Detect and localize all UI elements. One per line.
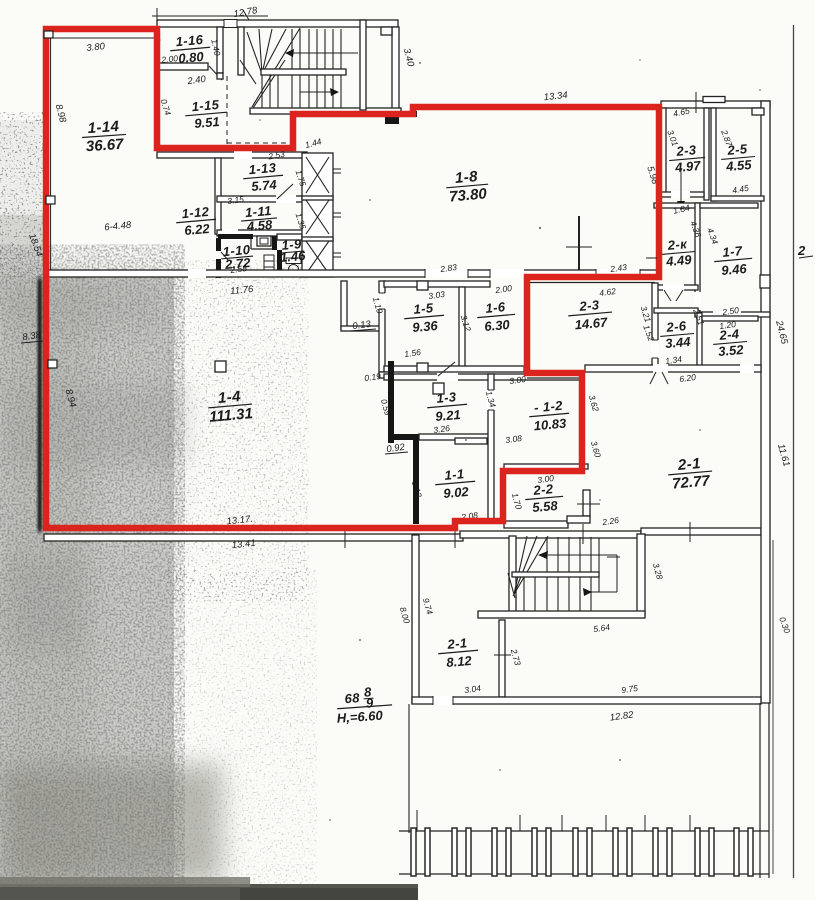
svg-text:4.58: 4.58 [245, 217, 273, 234]
svg-text:2: 2 [797, 243, 806, 258]
svg-text:5.58: 5.58 [532, 498, 559, 515]
svg-text:9.02: 9.02 [443, 484, 470, 501]
svg-text:2-к: 2-к [666, 236, 689, 253]
svg-text:1-6: 1-6 [485, 299, 507, 316]
svg-text:9.46: 9.46 [721, 261, 748, 278]
svg-text:4.55: 4.55 [725, 157, 753, 174]
svg-text:6.30: 6.30 [484, 317, 511, 334]
svg-text:9.51: 9.51 [194, 114, 221, 131]
svg-text:1-5: 1-5 [413, 300, 435, 317]
svg-text:14.67: 14.67 [574, 315, 608, 333]
svg-text:9.36: 9.36 [412, 318, 439, 335]
svg-text:2.00: 2.00 [160, 53, 179, 65]
svg-text:0.80: 0.80 [178, 49, 205, 66]
svg-text:6.22: 6.22 [184, 221, 211, 238]
svg-text:1-12: 1-12 [181, 204, 210, 221]
svg-text:1-7: 1-7 [722, 243, 744, 260]
svg-text:2-3: 2-3 [578, 297, 601, 314]
svg-text:1-1: 1-1 [444, 466, 465, 483]
svg-text:4.97: 4.97 [674, 158, 702, 175]
svg-text:1-8: 1-8 [454, 168, 479, 187]
svg-text:8.12: 8.12 [446, 653, 473, 670]
svg-text:3.52: 3.52 [718, 342, 745, 359]
svg-text:1-13: 1-13 [248, 160, 277, 177]
svg-text:73.80: 73.80 [449, 185, 489, 205]
svg-text:1-16: 1-16 [175, 32, 204, 49]
svg-text:68: 68 [344, 690, 361, 706]
svg-text:2-1: 2-1 [446, 635, 468, 652]
svg-text:2-6: 2-6 [665, 318, 688, 335]
svg-text:1.46: 1.46 [279, 248, 306, 265]
svg-text:- 1-2: - 1-2 [533, 398, 563, 415]
svg-text:72.77: 72.77 [672, 472, 712, 492]
svg-text:2-1: 2-1 [676, 455, 701, 474]
svg-text:3.80: 3.80 [86, 41, 106, 54]
svg-text:9.21: 9.21 [435, 407, 462, 424]
svg-text:1-4: 1-4 [217, 388, 242, 407]
svg-text:1-14: 1-14 [87, 118, 120, 137]
svg-text:5.74: 5.74 [251, 177, 278, 194]
svg-text:1-3: 1-3 [436, 389, 458, 406]
svg-text:36.67: 36.67 [85, 136, 124, 156]
svg-text:1-15: 1-15 [191, 97, 220, 114]
svg-text:3.44: 3.44 [665, 334, 692, 351]
svg-text:4.49: 4.49 [665, 252, 693, 269]
svg-text:10.83: 10.83 [533, 416, 567, 434]
